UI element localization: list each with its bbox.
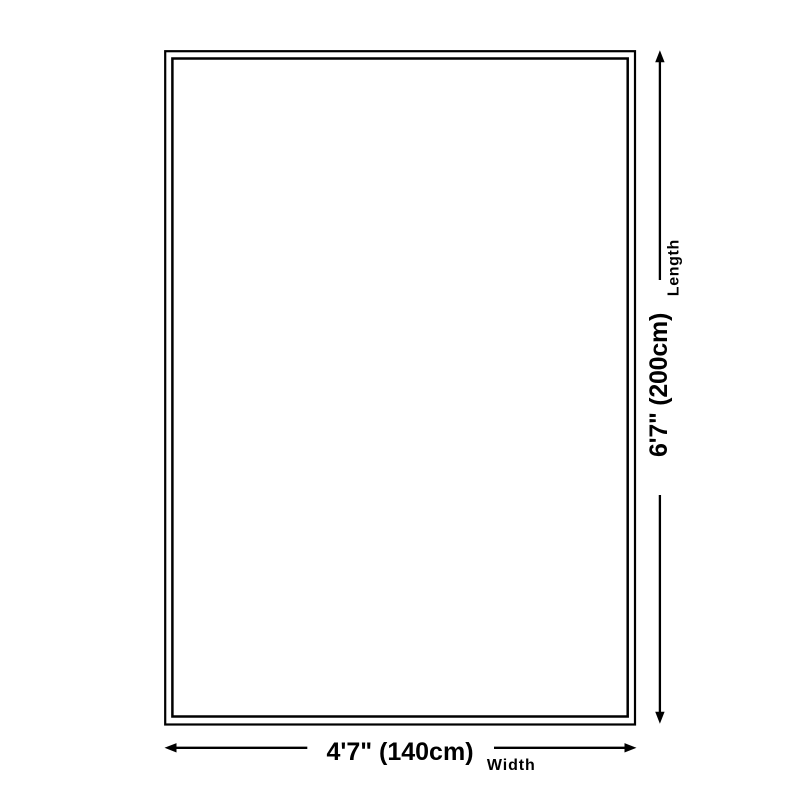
svg-text:Width: Width <box>487 757 536 774</box>
svg-text:4'7" (140cm): 4'7" (140cm) <box>326 738 473 766</box>
svg-text:Length: Length <box>666 239 683 296</box>
svg-text:6'7" (200cm): 6'7" (200cm) <box>645 313 673 457</box>
